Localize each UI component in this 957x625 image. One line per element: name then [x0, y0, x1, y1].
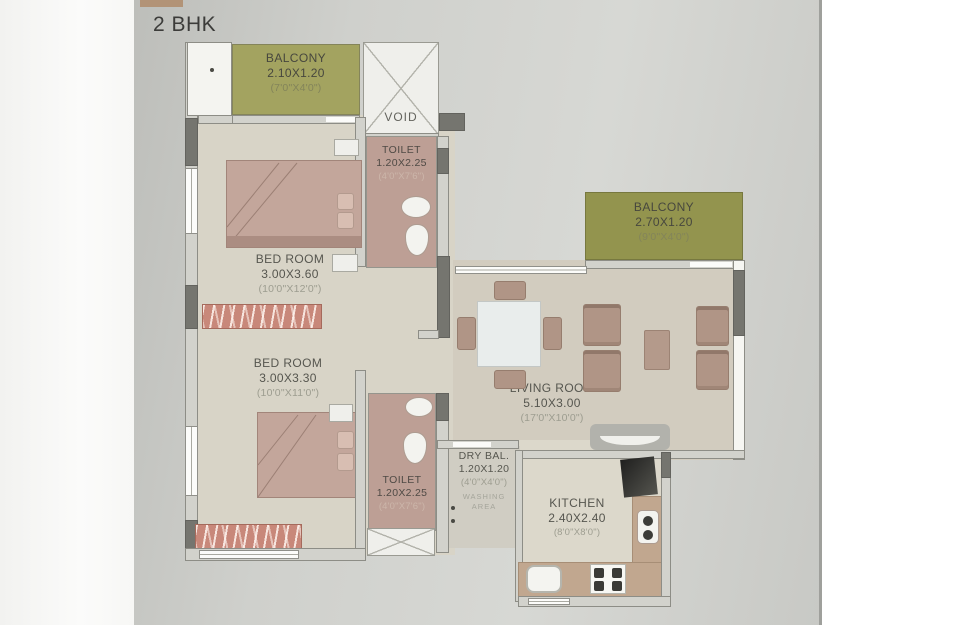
room-size-imperial: (7'0"X4'0"): [233, 82, 359, 95]
duct-shaft: [367, 528, 435, 556]
room-label-bedroom-bottom: BED ROOM 3.00X3.30 (10'0"X11'0"): [203, 356, 373, 400]
hob: [637, 510, 659, 544]
room-name: DRY BAL.: [448, 450, 520, 463]
room-label-toilet-bottom: TOILET 1.20X2.25 (4'0"X7'6"): [368, 474, 436, 513]
pillow: [337, 453, 354, 471]
room-name: BALCONY: [233, 51, 359, 66]
wardrobe: [202, 304, 322, 329]
coffee-table: [644, 330, 670, 370]
sofa: [696, 350, 729, 390]
room-size-imperial: (10'0"X12'0"): [205, 283, 375, 296]
room-size-metric: 2.10X1.20: [233, 66, 359, 81]
wash-basin: [401, 196, 431, 218]
door-opening: [326, 117, 356, 122]
sofa: [583, 350, 621, 392]
tv-unit: [590, 424, 670, 450]
nightstand: [334, 139, 359, 156]
plan-mark: [210, 68, 214, 72]
stove-burner: [612, 568, 622, 578]
pillow: [337, 431, 354, 449]
stove-burner: [594, 581, 604, 591]
wall-column: [439, 113, 465, 131]
room-size-metric: 2.40X2.40: [522, 511, 632, 526]
window: [199, 550, 299, 559]
room-size-imperial: (10'0"X11'0"): [203, 387, 373, 400]
room-size-metric: 3.00X3.60: [205, 267, 375, 282]
room-name: BED ROOM: [205, 252, 375, 267]
wall-column: [733, 270, 745, 336]
wall-column: [436, 393, 449, 421]
bed: [257, 412, 357, 498]
room-name: TOILET: [366, 144, 437, 157]
wall: [355, 370, 366, 550]
duct-box: [187, 42, 232, 116]
window: [185, 168, 198, 234]
room-size-imperial: (8'0"X8'0"): [522, 527, 632, 539]
room-name: BED ROOM: [203, 356, 373, 371]
window: [455, 266, 587, 274]
wall-column: [185, 285, 198, 329]
room-name: KITCHEN: [522, 496, 632, 511]
floor-plan: BALCONY 2.10X1.20 (7'0"X4'0") VOID TOILE…: [185, 38, 747, 616]
refrigerator: [620, 456, 658, 497]
room-size-imperial: (4'0"X7'6"): [366, 171, 437, 183]
door-opening: [453, 442, 491, 447]
dining-chair: [543, 317, 562, 350]
bed-footboard: [227, 236, 361, 247]
room-name: VOID: [384, 110, 417, 124]
pillow: [337, 212, 354, 229]
hob-burner: [643, 530, 653, 540]
floor-plan-photo: 2 BHK BALCONY 2.10X1.20 (7'0"X4'0") VOID: [0, 0, 957, 625]
dining-chair: [494, 370, 526, 389]
nightstand: [329, 404, 353, 422]
wall-column: [661, 452, 671, 478]
stove: [590, 564, 626, 594]
stove-burner: [594, 568, 604, 578]
tap-dot: [451, 506, 455, 510]
sofa: [583, 304, 621, 346]
room-label-balcony-top: BALCONY 2.10X1.20 (7'0"X4'0"): [233, 45, 359, 95]
window: [185, 426, 198, 496]
room-label-bedroom-top: BED ROOM 3.00X3.60 (10'0"X12'0"): [205, 252, 375, 296]
room-size-imperial: (4'0"X7'6"): [368, 501, 436, 513]
room-name: BALCONY: [586, 200, 742, 215]
void-shaft: VOID: [363, 42, 439, 135]
dining-chair: [457, 317, 476, 350]
door-opening: [690, 262, 732, 267]
room-size-imperial: (4'0"X4'0"): [448, 477, 520, 489]
dining-table: [477, 301, 541, 367]
tap-dot: [451, 519, 455, 523]
wash-basin: [405, 397, 433, 417]
tv-screen: [600, 436, 660, 445]
room-size-metric: 1.20X1.20: [448, 463, 520, 476]
wall: [198, 115, 234, 124]
page-top-accent: [140, 0, 183, 7]
room-label-balcony-right: BALCONY 2.70X1.20 (9'0"X4'0"): [586, 193, 742, 244]
wardrobe: [195, 524, 302, 551]
balcony-right: BALCONY 2.70X1.20 (9'0"X4'0"): [585, 192, 743, 260]
room-label-toilet-top: TOILET 1.20X2.25 (4'0"X7'6"): [366, 144, 437, 183]
wall: [418, 330, 439, 339]
sink: [526, 565, 562, 593]
washing-area-label: WASHING AREA: [459, 492, 509, 511]
room-size-metric: 1.20X2.25: [368, 487, 436, 500]
sofa: [696, 306, 729, 346]
room-size-metric: 1.20X2.25: [366, 157, 437, 170]
room-label-kitchen: KITCHEN 2.40X2.40 (8'0"X8'0"): [522, 496, 632, 539]
room-label-dry-balcony: DRY BAL. 1.20X1.20 (4'0"X4'0") WASHING A…: [448, 450, 520, 511]
stove-burner: [612, 581, 622, 591]
room-size-metric: 5.10X3.00: [467, 396, 637, 411]
room-size-metric: 2.70X1.20: [586, 215, 742, 230]
wall-column: [437, 148, 449, 174]
wall-column: [185, 118, 198, 166]
window: [528, 598, 570, 605]
hob-burner: [643, 516, 653, 526]
room-name: TOILET: [368, 474, 436, 487]
pillow: [337, 193, 354, 210]
photo-left-margin: [0, 0, 134, 625]
balcony-top: BALCONY 2.10X1.20 (7'0"X4'0"): [232, 44, 360, 115]
bed: [226, 160, 362, 248]
room-size-imperial: (9'0"X4'0"): [586, 231, 742, 244]
room-size-metric: 3.00X3.30: [203, 371, 373, 386]
page-title: 2 BHK: [153, 13, 216, 37]
dining-chair: [494, 281, 526, 300]
wall-column: [437, 256, 450, 338]
